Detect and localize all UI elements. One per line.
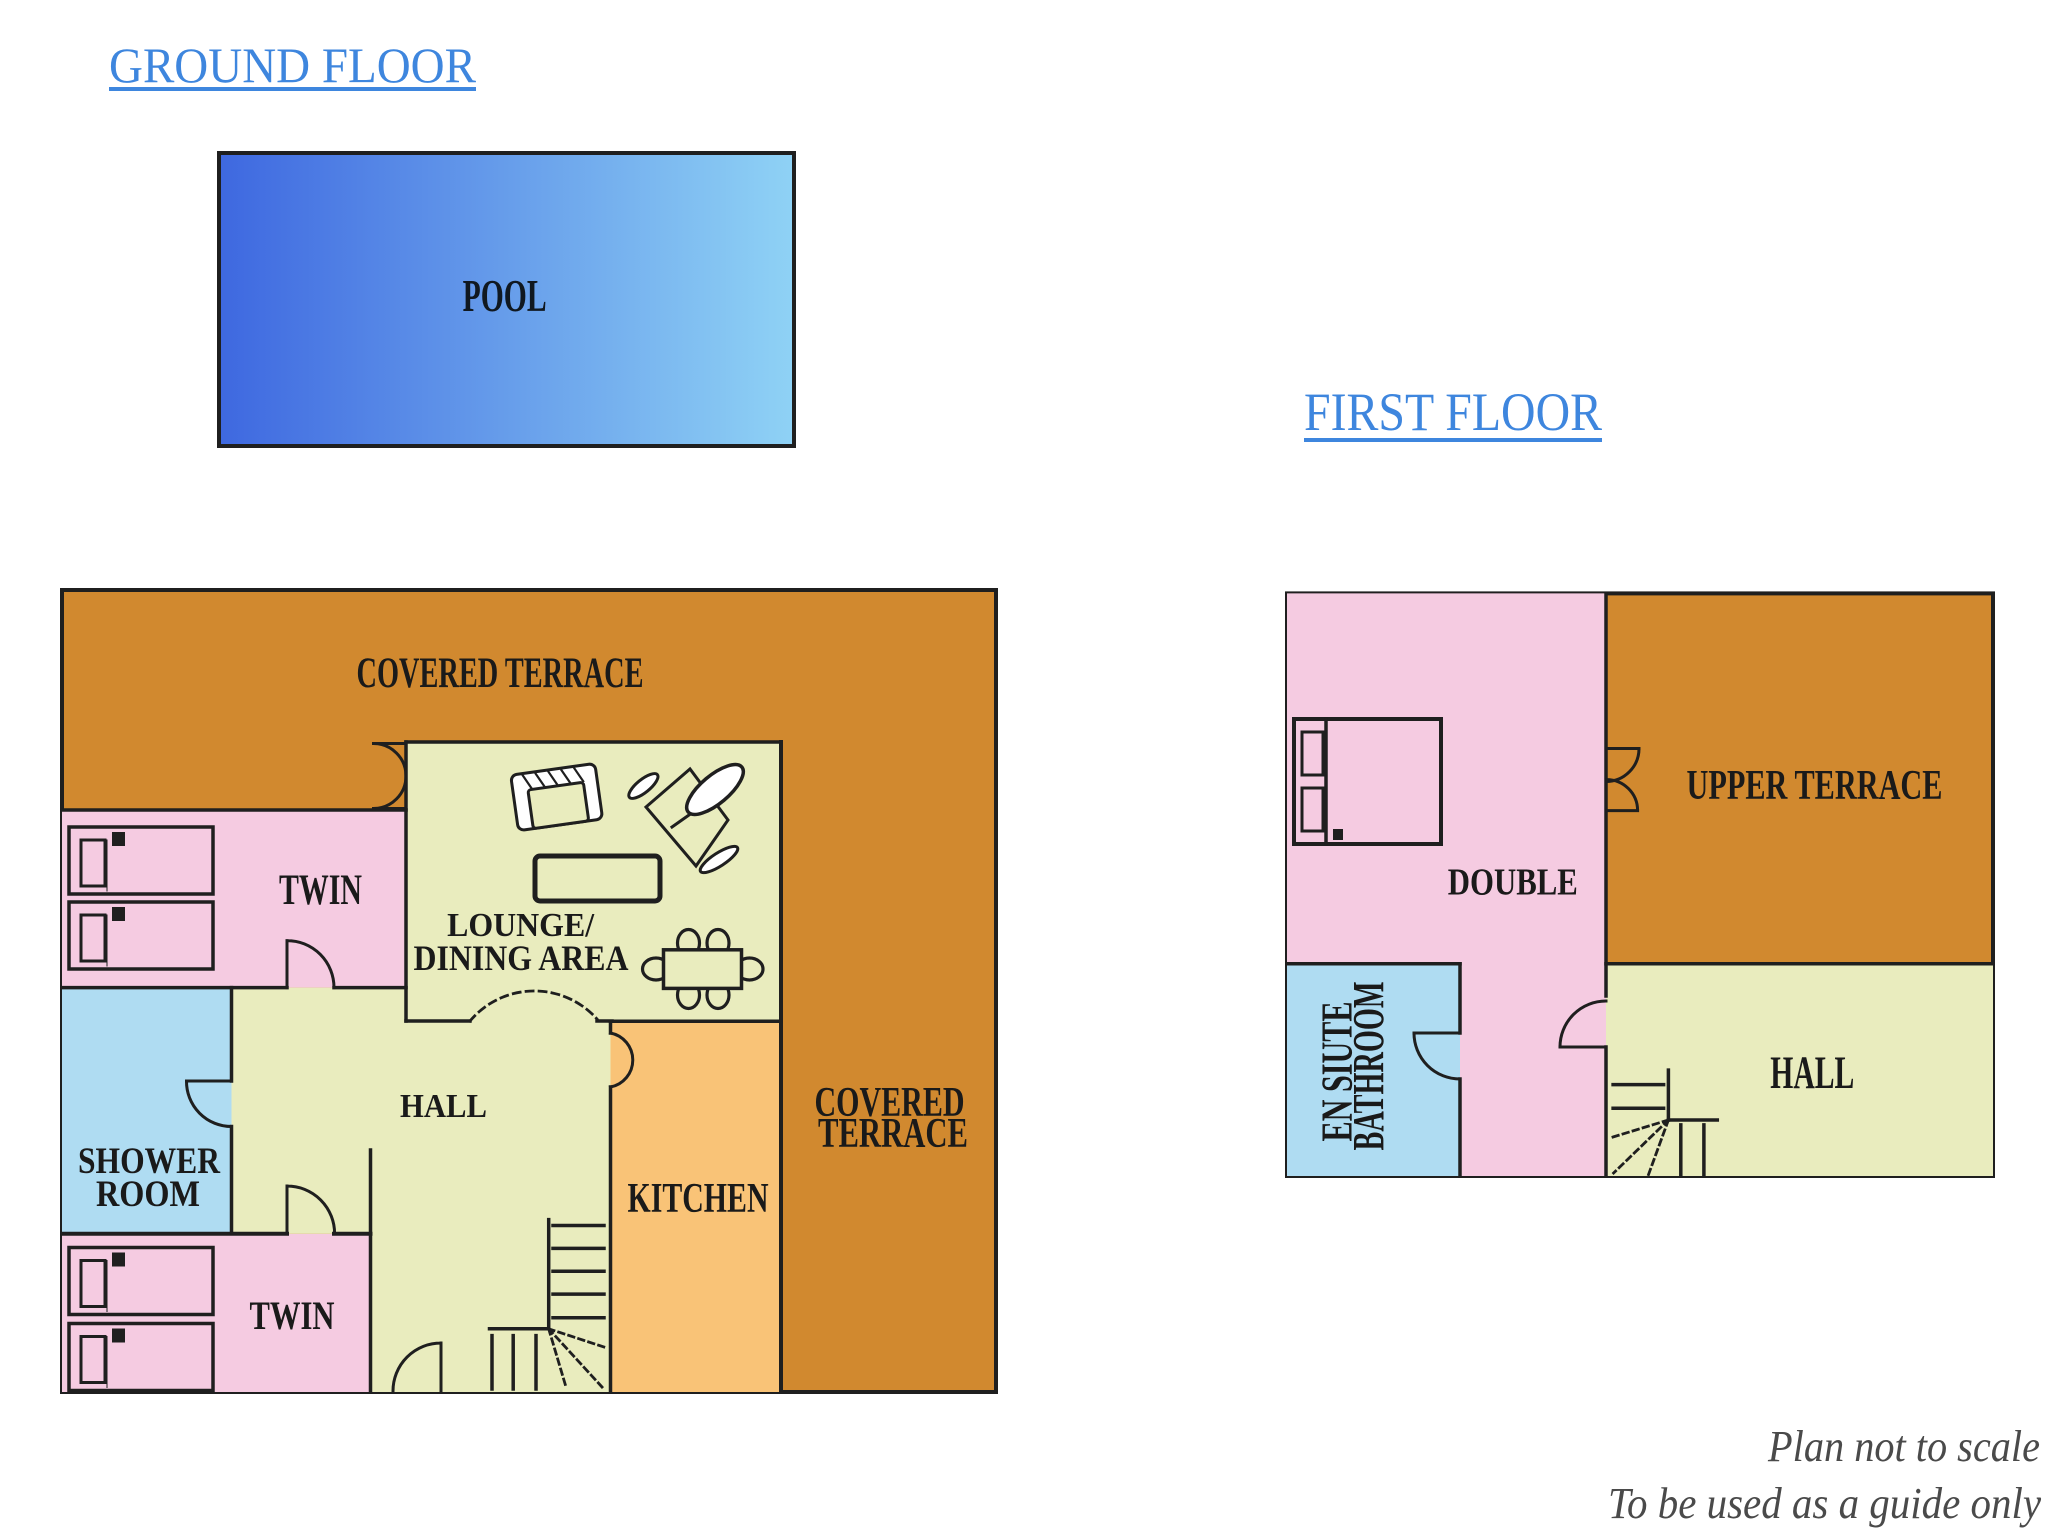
svg-text:DINING AREA: DINING AREA [414, 938, 629, 978]
svg-text:UPPER TERRACE: UPPER TERRACE [1687, 763, 1943, 809]
svg-text:HALL: HALL [400, 1088, 487, 1125]
svg-text:DOUBLE: DOUBLE [1448, 862, 1578, 904]
svg-text:HALL: HALL [1770, 1047, 1854, 1099]
svg-text:COVERED TERRACE: COVERED TERRACE [357, 650, 644, 697]
svg-text:To be used as a guide only: To be used as a guide only [1608, 1479, 2041, 1528]
svg-text:TWIN: TWIN [279, 867, 362, 914]
svg-text:TWIN: TWIN [250, 1293, 335, 1338]
svg-text:Plan not to scale: Plan not to scale [1767, 1422, 2040, 1471]
svg-text:GROUND FLOOR: GROUND FLOOR [109, 37, 477, 93]
svg-text:POOL: POOL [463, 271, 547, 321]
svg-text:KITCHEN: KITCHEN [628, 1176, 769, 1222]
svg-text:FIRST FLOOR: FIRST FLOOR [1304, 382, 1602, 442]
svg-text:BATHROOM: BATHROOM [1344, 982, 1393, 1151]
svg-text:ROOM: ROOM [96, 1174, 200, 1215]
svg-text:TERRACE: TERRACE [818, 1111, 968, 1157]
